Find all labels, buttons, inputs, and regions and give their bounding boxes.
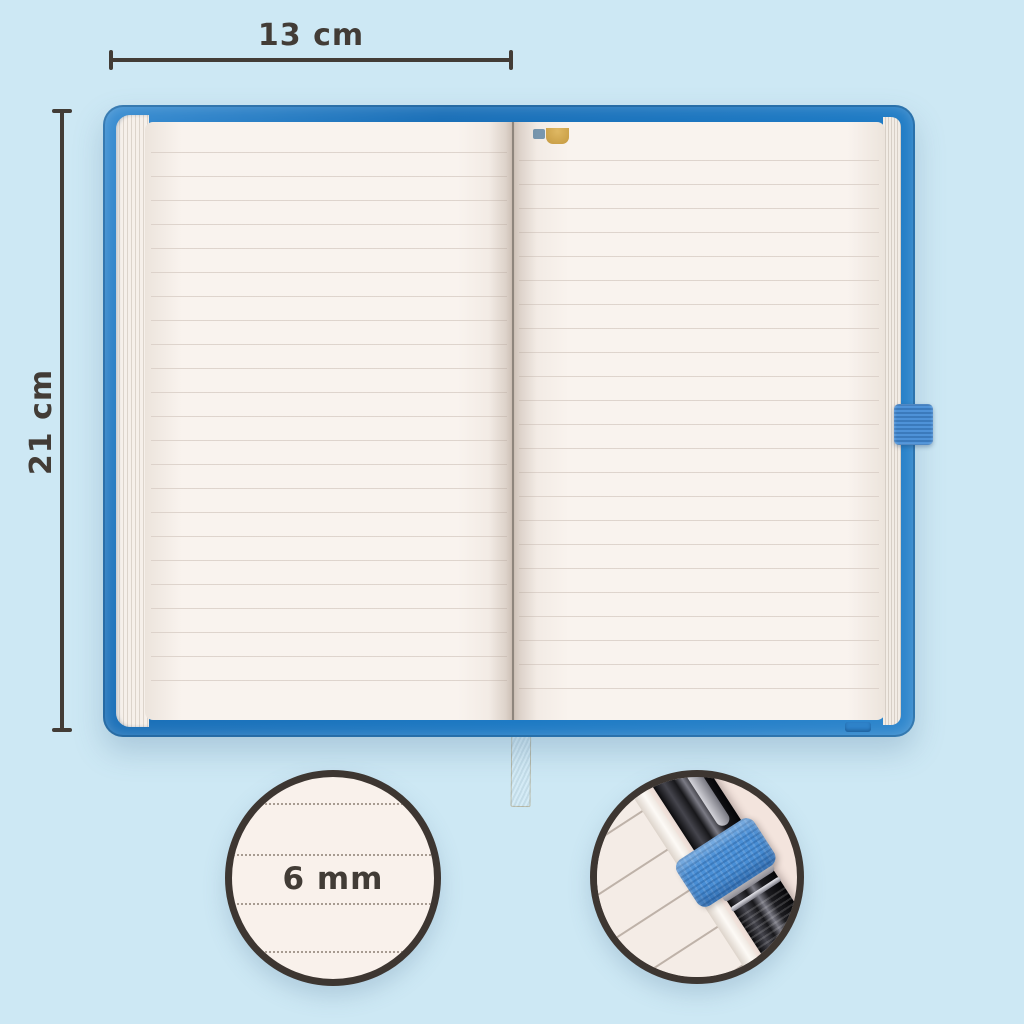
right-page (513, 122, 885, 720)
line-spacing-inset: 6 mm (225, 770, 441, 986)
width-dimension-tick-right (509, 50, 513, 70)
height-dimension-line (60, 111, 64, 732)
notebook (103, 105, 915, 737)
bookmark-attachment-tab (546, 128, 569, 144)
inset-rule-line (225, 854, 441, 856)
pen-detail-inset (590, 770, 804, 984)
spine-notch (533, 129, 545, 139)
inset-rule-line (225, 951, 441, 953)
left-page (145, 122, 513, 720)
line-spacing-label: 6 mm (232, 861, 434, 897)
height-dimension-label: 21 cm (27, 361, 57, 483)
inset-rule-line (225, 903, 441, 905)
elastic-closure-stub (845, 722, 871, 732)
pen-loop (894, 404, 933, 445)
width-dimension-label: 13 cm (111, 18, 511, 53)
height-dimension-tick-top (52, 109, 72, 113)
left-page-rule-lines (151, 152, 507, 704)
product-image: 13 cm 21 cm (0, 0, 1024, 1024)
height-dimension-tick-bottom (52, 728, 72, 732)
right-page-rule-lines (519, 160, 879, 704)
inset-rule-line (225, 803, 441, 805)
spine (512, 122, 514, 720)
pen-scene (590, 770, 804, 984)
width-dimension-tick-left (109, 50, 113, 70)
width-dimension-line (111, 58, 512, 62)
open-pages (145, 122, 885, 720)
